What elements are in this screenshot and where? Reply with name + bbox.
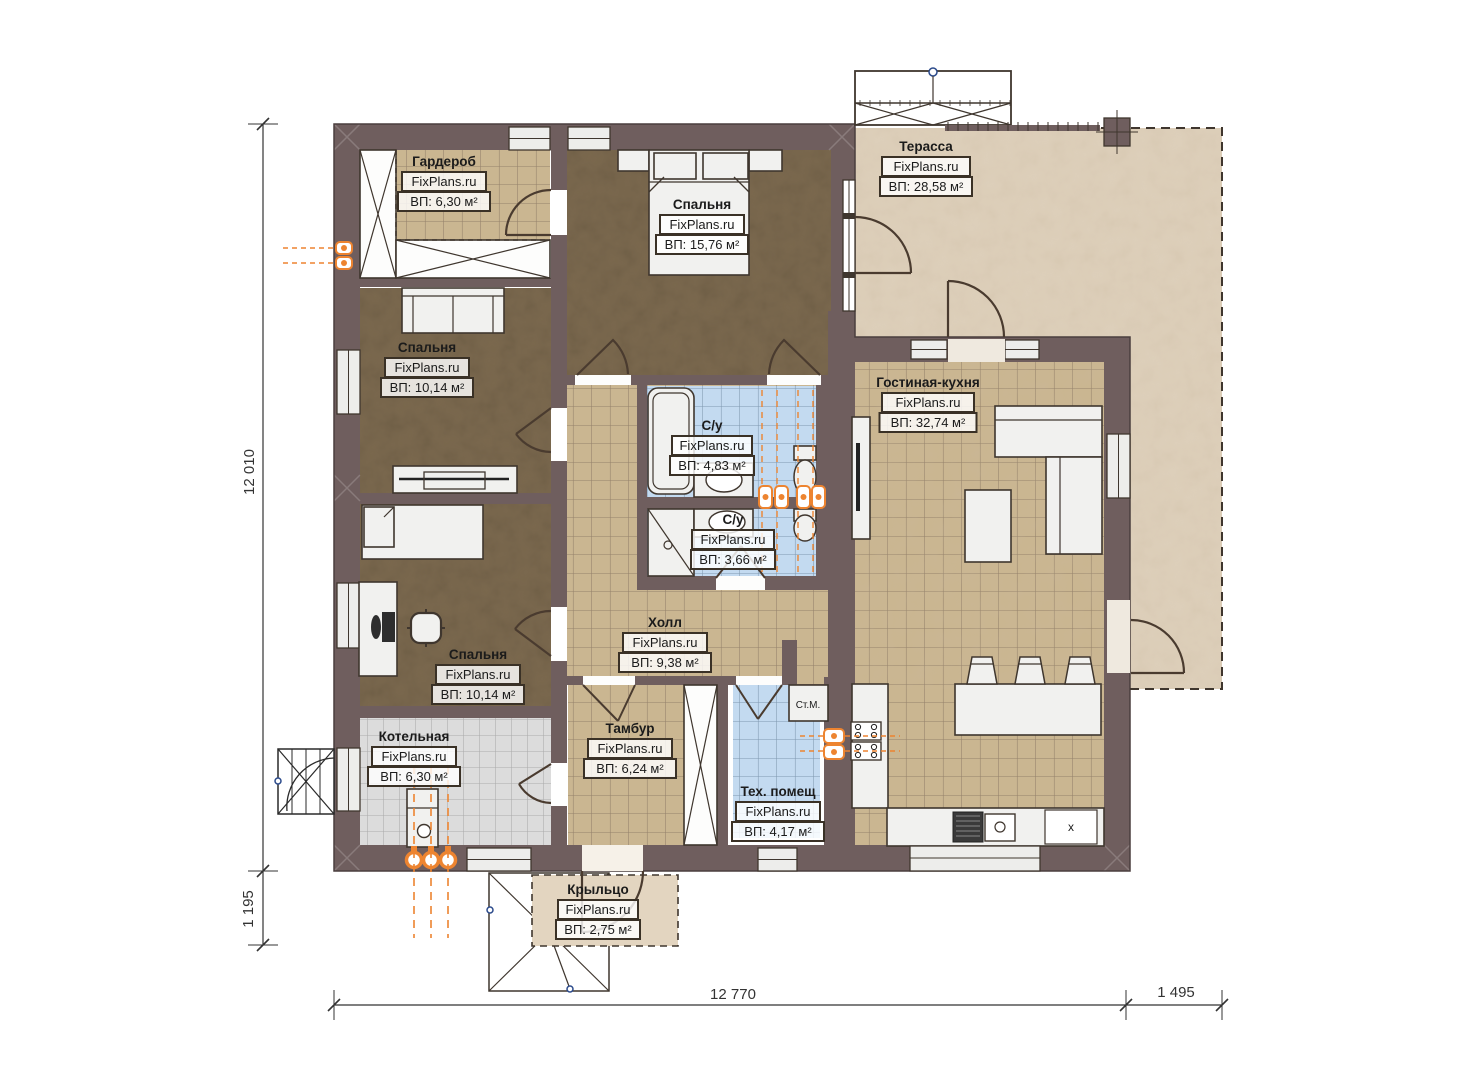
svg-text:ВП: 2,75 м²: ВП: 2,75 м²	[564, 922, 632, 937]
svg-text:Котельная: Котельная	[379, 729, 450, 744]
svg-text:ВП: 10,14 м²: ВП: 10,14 м²	[441, 687, 516, 702]
svg-text:FixPlans.ru: FixPlans.ru	[565, 902, 630, 917]
svg-text:FixPlans.ru: FixPlans.ru	[411, 174, 476, 189]
svg-text:ВП: 6,24 м²: ВП: 6,24 м²	[596, 761, 664, 776]
svg-text:ВП: 4,83 м²: ВП: 4,83 м²	[678, 458, 746, 473]
svg-text:ВП: 32,74 м²: ВП: 32,74 м²	[891, 415, 966, 430]
svg-text:Терасса: Терасса	[899, 139, 953, 154]
svg-text:ВП: 28,58 м²: ВП: 28,58 м²	[889, 179, 964, 194]
svg-text:FixPlans.ru: FixPlans.ru	[700, 532, 765, 547]
svg-text:С/у: С/у	[722, 512, 744, 527]
svg-text:FixPlans.ru: FixPlans.ru	[679, 438, 744, 453]
svg-text:Гардероб: Гардероб	[412, 154, 476, 169]
svg-text:FixPlans.ru: FixPlans.ru	[895, 395, 960, 410]
svg-text:FixPlans.ru: FixPlans.ru	[669, 217, 734, 232]
svg-text:FixPlans.ru: FixPlans.ru	[745, 804, 810, 819]
svg-text:x: x	[1068, 820, 1074, 834]
svg-text:ВП: 3,66 м²: ВП: 3,66 м²	[699, 552, 767, 567]
svg-text:С/у: С/у	[701, 418, 723, 433]
svg-text:Крыльцо: Крыльцо	[567, 882, 628, 897]
svg-text:12 010: 12 010	[241, 449, 258, 495]
svg-text:12 770: 12 770	[710, 986, 756, 1003]
svg-text:FixPlans.ru: FixPlans.ru	[632, 635, 697, 650]
svg-text:ВП: 6,30 м²: ВП: 6,30 м²	[410, 194, 478, 209]
svg-text:FixPlans.ru: FixPlans.ru	[381, 749, 446, 764]
svg-text:ВП: 15,76 м²: ВП: 15,76 м²	[665, 237, 740, 252]
svg-text:1 495: 1 495	[1157, 984, 1195, 1001]
svg-text:Спальня: Спальня	[449, 647, 507, 662]
svg-text:1 195: 1 195	[240, 890, 257, 928]
svg-text:FixPlans.ru: FixPlans.ru	[394, 360, 459, 375]
svg-text:ВП: 9,38 м²: ВП: 9,38 м²	[631, 655, 699, 670]
svg-text:Тех. помещ: Тех. помещ	[740, 784, 816, 799]
svg-text:FixPlans.ru: FixPlans.ru	[893, 159, 958, 174]
svg-text:Гостиная-кухня: Гостиная-кухня	[876, 375, 979, 390]
svg-text:ВП: 6,30 м²: ВП: 6,30 м²	[380, 769, 448, 784]
svg-text:FixPlans.ru: FixPlans.ru	[445, 667, 510, 682]
svg-text:Тамбур: Тамбур	[606, 721, 655, 736]
svg-text:Ст.М.: Ст.М.	[796, 700, 821, 711]
svg-text:ВП: 10,14 м²: ВП: 10,14 м²	[390, 380, 465, 395]
svg-text:Спальня: Спальня	[398, 340, 456, 355]
svg-text:Спальня: Спальня	[673, 197, 731, 212]
svg-text:FixPlans.ru: FixPlans.ru	[597, 741, 662, 756]
svg-text:Холл: Холл	[648, 615, 682, 630]
svg-text:ВП: 4,17 м²: ВП: 4,17 м²	[744, 824, 812, 839]
